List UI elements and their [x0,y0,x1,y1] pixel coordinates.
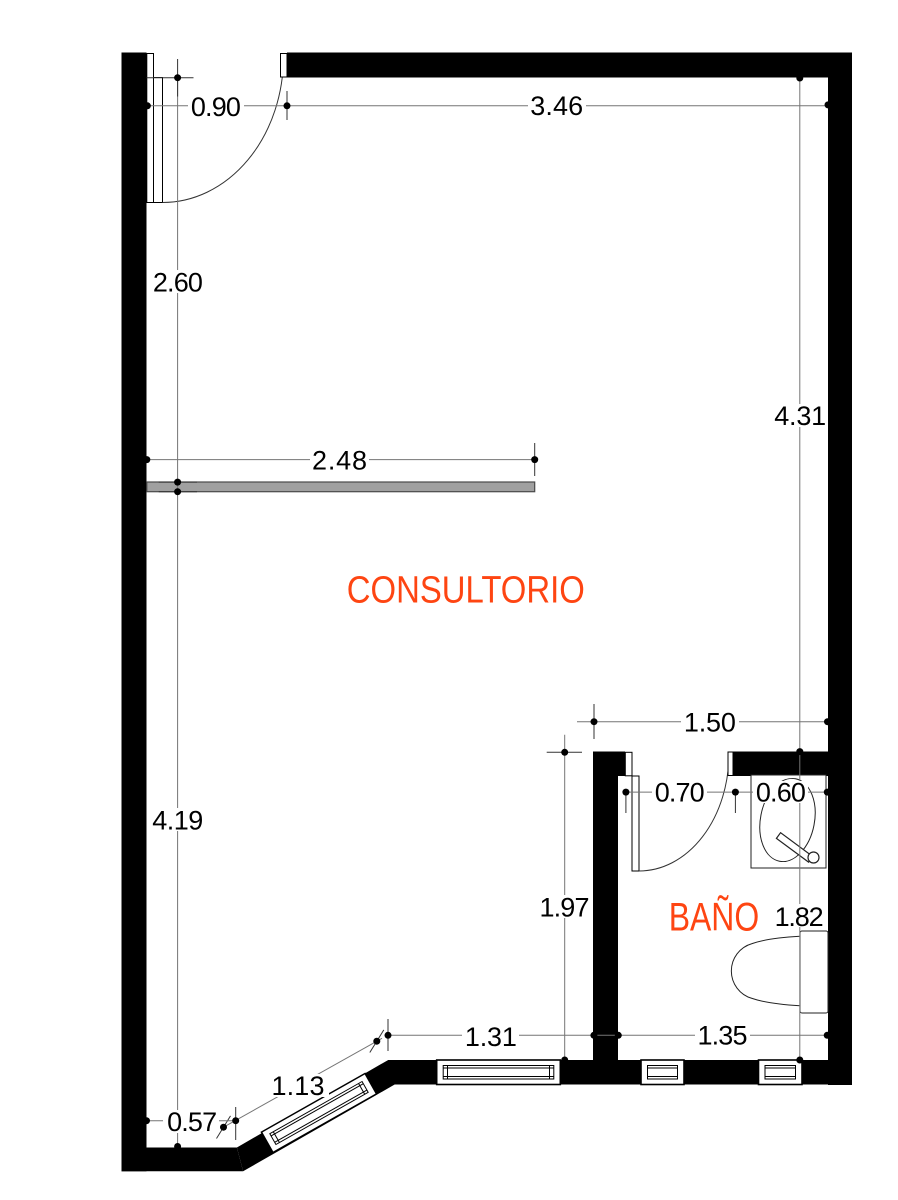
svg-text:0.57: 0.57 [167,1107,217,1137]
svg-text:1.35: 1.35 [698,1021,748,1051]
svg-text:0.70: 0.70 [655,777,705,807]
svg-text:1.82: 1.82 [775,902,824,932]
svg-text:1.97: 1.97 [540,893,590,923]
svg-text:0.90: 0.90 [191,92,241,122]
svg-text:2.60: 2.60 [153,267,203,297]
svg-text:4.19: 4.19 [152,806,203,836]
svg-text:1.50: 1.50 [684,707,736,737]
svg-text:0.60: 0.60 [756,777,806,807]
svg-text:1.31: 1.31 [465,1022,517,1052]
svg-text:2.48: 2.48 [312,446,367,476]
svg-text:CONSULTORIO: CONSULTORIO [347,569,585,611]
svg-text:4.31: 4.31 [774,401,826,431]
svg-text:3.46: 3.46 [530,91,583,121]
svg-text:BAÑO: BAÑO [669,895,760,940]
svg-text:1.13: 1.13 [272,1071,325,1101]
